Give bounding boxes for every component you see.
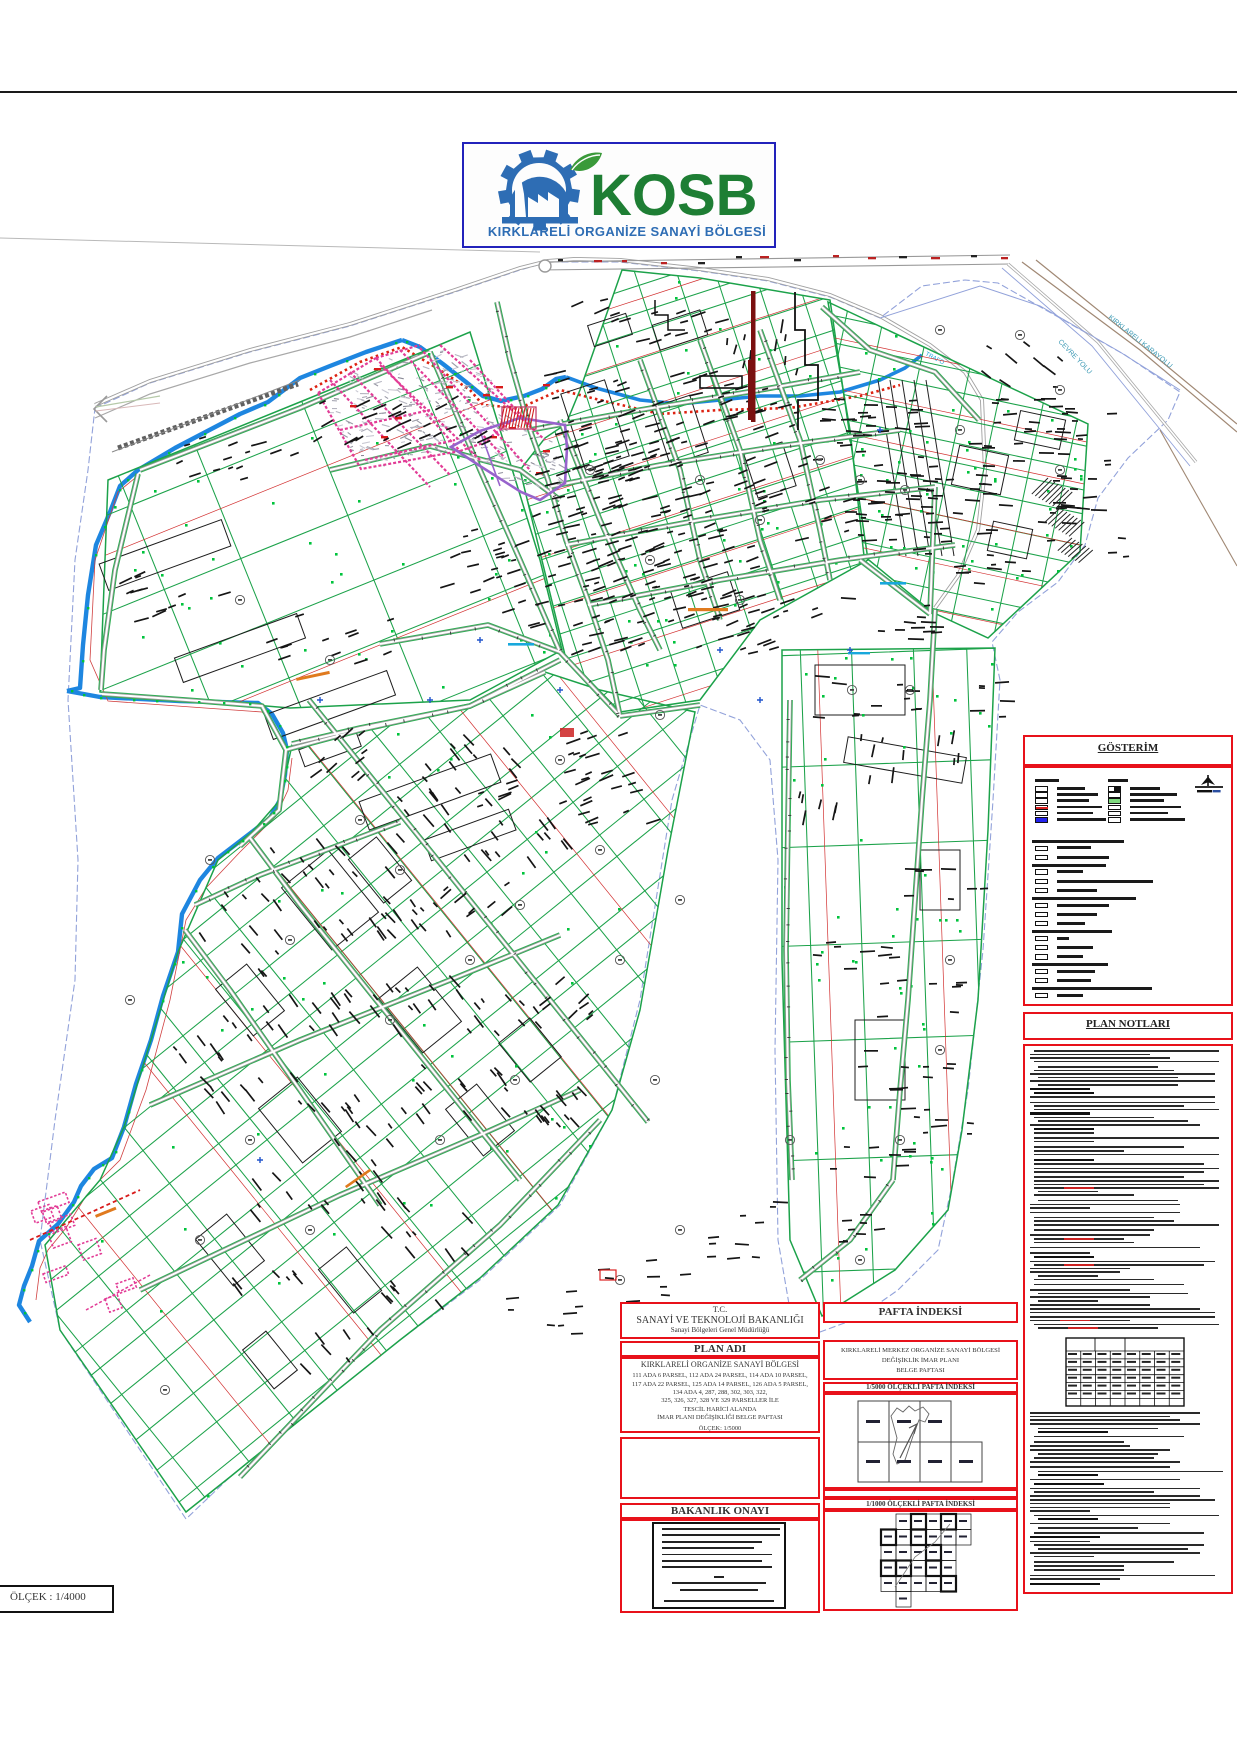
svg-text:KIRKLARELI KARAYOLU: KIRKLARELI KARAYOLU	[1107, 314, 1174, 370]
svg-text:CEVRE YOLU: CEVRE YOLU	[1057, 339, 1093, 376]
